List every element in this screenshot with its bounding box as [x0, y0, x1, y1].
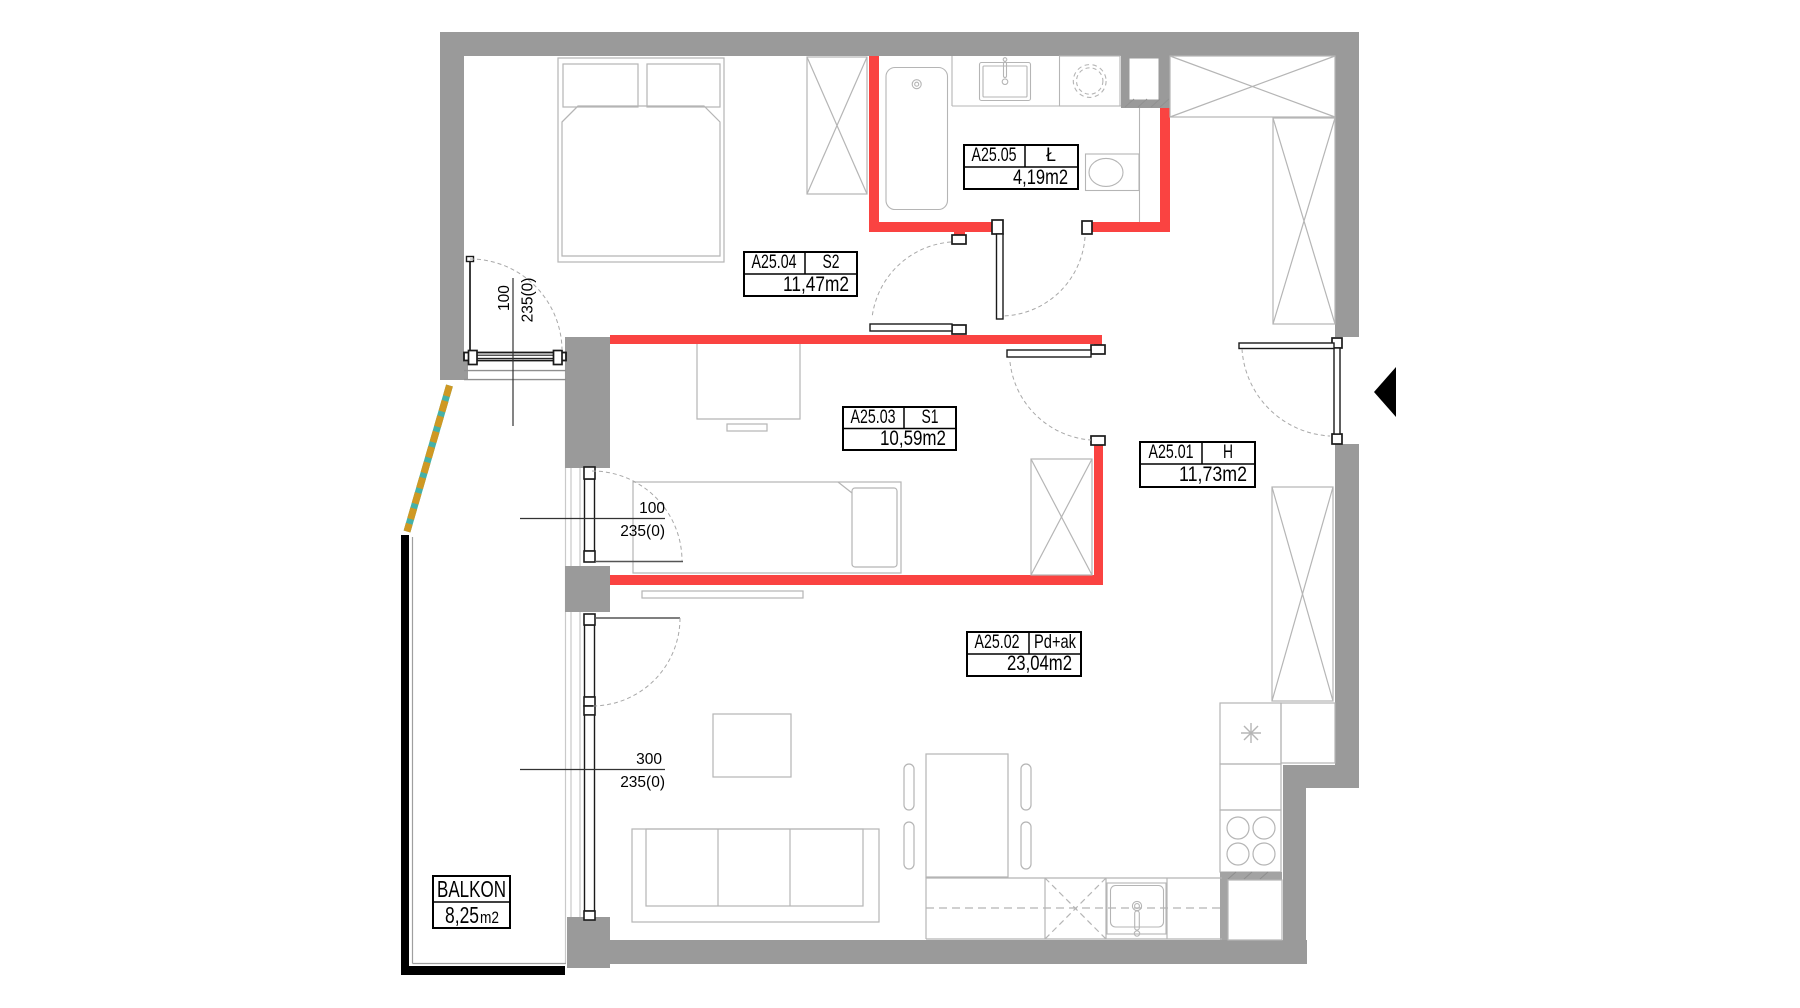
svg-text:11,47m2: 11,47m2: [783, 273, 849, 296]
svg-text:235(0): 235(0): [520, 278, 537, 323]
svg-text:10,59m2: 10,59m2: [880, 427, 946, 450]
svg-text:A25.05: A25.05: [972, 144, 1017, 166]
svg-text:23,04m2: 23,04m2: [1007, 652, 1072, 675]
svg-text:A25.02: A25.02: [975, 631, 1020, 653]
svg-text:235(0): 235(0): [620, 774, 665, 791]
svg-text:235(0): 235(0): [620, 523, 665, 540]
svg-text:S1: S1: [922, 406, 939, 428]
svg-text:m2: m2: [480, 908, 499, 927]
svg-text:BALKON: BALKON: [437, 876, 506, 902]
svg-text:100: 100: [639, 500, 665, 517]
svg-text:Ł: Ł: [1046, 144, 1056, 166]
svg-text:300: 300: [636, 751, 662, 768]
svg-text:A25.04: A25.04: [752, 251, 797, 273]
svg-text:4,19m2: 4,19m2: [1013, 166, 1068, 189]
svg-text:A25.01: A25.01: [1149, 441, 1194, 463]
svg-text:S2: S2: [823, 251, 840, 273]
svg-text:Pd+ak: Pd+ak: [1034, 631, 1076, 653]
svg-text:A25.03: A25.03: [851, 406, 896, 428]
svg-text:100: 100: [496, 285, 513, 311]
svg-text:11,73m2: 11,73m2: [1179, 463, 1247, 486]
svg-text:H: H: [1223, 441, 1233, 463]
svg-text:8,25: 8,25: [445, 902, 479, 928]
